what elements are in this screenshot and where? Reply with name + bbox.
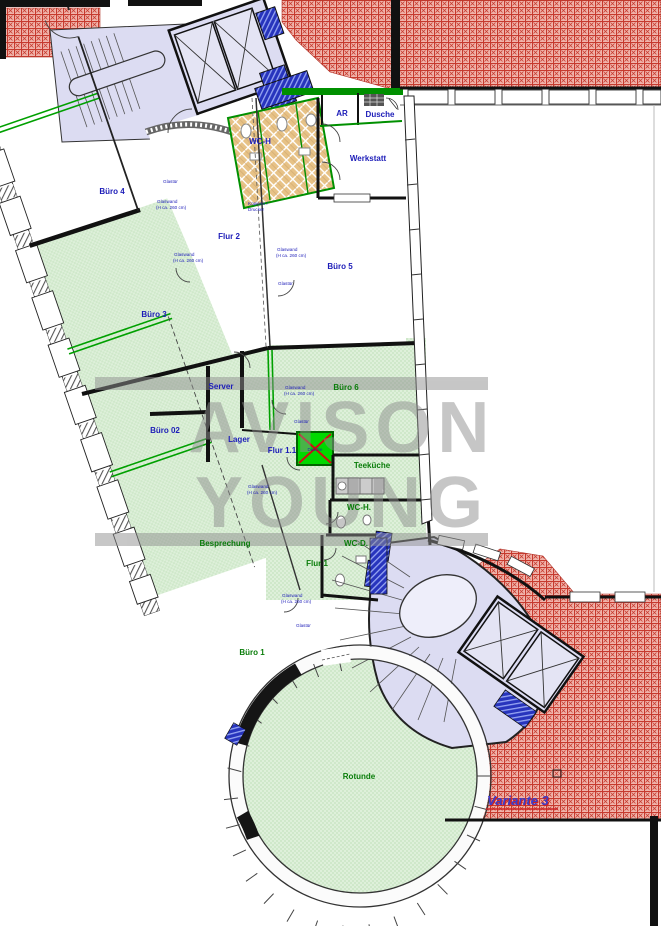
titleblock-right-bar	[650, 816, 658, 926]
note-drucker: Drucker	[248, 207, 265, 212]
label-wch: WC-H.	[347, 503, 371, 512]
note-glaswand-h: (H ca. 260 cm)	[281, 599, 312, 604]
label-buero5: Büro 5	[327, 262, 353, 271]
watermark-bar-bottom	[95, 533, 488, 546]
label-lager: Lager	[228, 435, 250, 444]
note-glastuer: Glastür	[296, 623, 311, 628]
label-dusche: Dusche	[366, 110, 395, 119]
note-glaswand-h: (H ca. 260 cm)	[156, 205, 187, 210]
label-flur11: Flur 1.1	[268, 446, 297, 455]
watermark-line1: AVISON	[189, 388, 496, 468]
shaft-hatch-left-of-stair	[370, 538, 387, 594]
note-glaswand: Glaswand	[277, 247, 298, 252]
note-glastuer: Glastür	[278, 281, 293, 286]
label-ar: AR	[336, 109, 348, 118]
label-rotunde: Rotunde	[343, 772, 376, 781]
floorplan-drawing: AVISON YOUNG Büro 4 Flur 2 Büro 3 Büro 5…	[0, 0, 661, 926]
wall-top-edge-1	[0, 0, 110, 7]
note-glaswand: Glaswand	[285, 385, 306, 390]
wall-left-edge	[0, 7, 6, 59]
note-glaswand: Glaswand	[174, 252, 195, 257]
label-buero1: Büro 1	[239, 648, 265, 657]
note-glaswand: Glaswand	[282, 593, 303, 598]
window-werkstatt	[334, 194, 370, 202]
note-glastuer: Glastür	[294, 419, 309, 424]
wall-top-edge-2	[128, 0, 202, 6]
label-teekueche: Teeküche	[354, 461, 391, 470]
note-glaswand-h: (H ca. 260 cm)	[276, 253, 307, 258]
note-glaswand: Glaswand	[157, 199, 178, 204]
label-flur2: Flur 2	[218, 232, 240, 241]
floorplan-canvas: AVISON YOUNG Büro 4 Flur 2 Büro 3 Büro 5…	[0, 0, 661, 926]
label-wcd: WC-D.	[344, 539, 368, 548]
new-wall-green-top	[282, 88, 403, 95]
label-server: Server	[209, 382, 234, 391]
watermark-line2: YOUNG	[195, 463, 489, 543]
roof-area-top-right	[282, 0, 661, 92]
note-glaswand-h: (H ca. 260 cm)	[284, 391, 315, 396]
note-glaswand-h: (H ca. 260 cm)	[247, 490, 278, 495]
note-glaswand-h: (H ca. 260 cm)	[173, 258, 204, 263]
boundary-wall-top	[391, 0, 400, 92]
label-werkstatt: Werkstatt	[350, 154, 387, 163]
windows-top-right	[408, 90, 661, 104]
label-buero3: Büro 3	[141, 310, 167, 319]
note-kopierer: Kopierer /	[248, 201, 269, 206]
label-flur1: Flur 1	[306, 559, 328, 568]
label-buero6: Büro 6	[333, 383, 359, 392]
label-removed-shower: Dusche	[308, 447, 323, 452]
room-buero5-floor	[266, 198, 406, 345]
variant-title: Variante 3 Variante 3	[486, 793, 558, 809]
shower-base	[364, 94, 384, 106]
variant-label: Variante 3	[487, 793, 549, 808]
label-wch-top: WC-H	[249, 137, 271, 146]
label-besprechung: Besprechung	[199, 539, 250, 548]
note-glaswand: Glaswand	[248, 484, 269, 489]
note-glastuer: Glastür	[163, 179, 178, 184]
label-buero4: Büro 4	[99, 187, 125, 196]
label-buero02: Büro 02	[150, 426, 180, 435]
